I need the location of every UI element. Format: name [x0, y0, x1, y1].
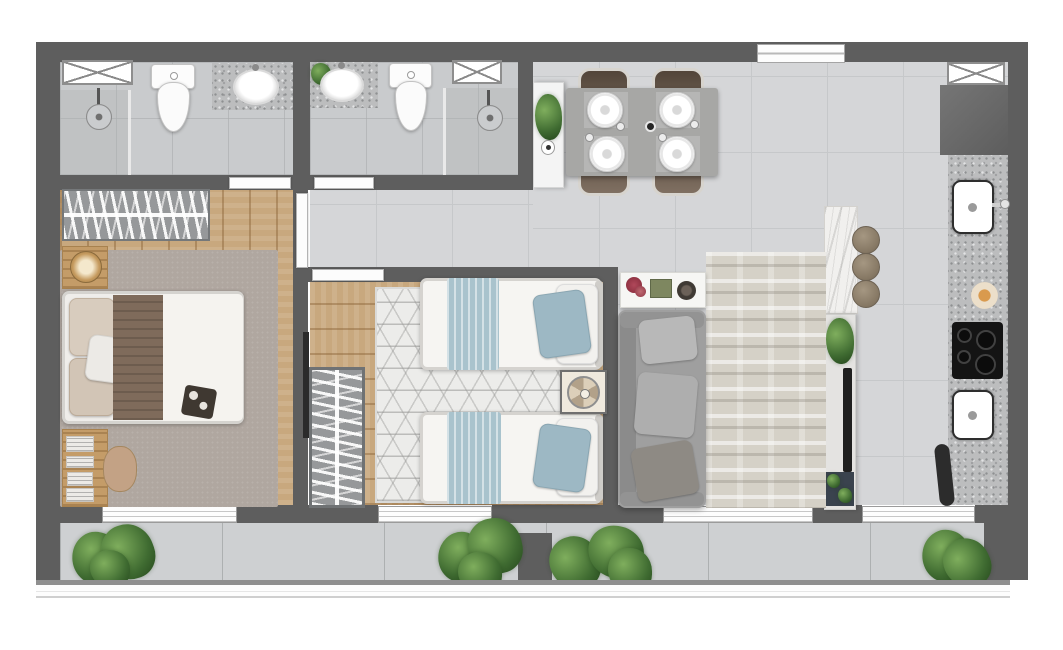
toilet2-button [407, 71, 415, 79]
door-bedroom2 [312, 269, 384, 281]
sofa-cushion-2 [633, 372, 698, 439]
shelf-plant-1-icon [827, 474, 840, 488]
shower2-head-icon [477, 105, 503, 131]
entrance-door [757, 44, 845, 63]
tray-cup-2 [199, 401, 208, 410]
twin-bed-b [420, 412, 602, 504]
toilet1-button [170, 72, 178, 80]
desk-paper-3 [67, 472, 93, 486]
hallway-floor [310, 190, 533, 267]
twin-bed-a-blanket [447, 278, 499, 370]
dark-bowl [677, 281, 696, 300]
slider-bedroom1 [102, 506, 237, 523]
glass-3 [658, 133, 667, 142]
bedroom1-wardrobe [62, 189, 210, 241]
burner-2 [976, 330, 996, 350]
railing-white-band [36, 585, 1010, 598]
bedroom1-lamp-icon [70, 251, 102, 283]
desk-paper-1 [66, 436, 94, 452]
floor-plan [0, 0, 1063, 650]
tv [843, 368, 852, 472]
stool-2 [852, 253, 880, 281]
green-box [650, 279, 672, 298]
shower1-area [60, 90, 131, 175]
bedroom1-desk [62, 429, 108, 507]
hall-plant-icon [535, 94, 562, 140]
wall-bath-bottom [60, 175, 533, 190]
tray-cup-1 [188, 390, 198, 400]
x-window-bathroom1 [62, 60, 133, 85]
shower2-area [443, 88, 518, 175]
glass-1 [616, 122, 625, 131]
slider-living [663, 506, 813, 523]
shower2-glass [443, 88, 446, 175]
slider-kitchen [862, 506, 975, 523]
wall-bath-divider [293, 62, 310, 175]
x-window-kitchen [947, 62, 1005, 85]
twin-bed-a [420, 278, 602, 370]
kitchen-sink-drain [968, 203, 977, 212]
wall-top [36, 42, 1028, 62]
stool-3 [852, 280, 880, 308]
wall-right [1008, 42, 1028, 520]
red-flower-small-icon [635, 286, 646, 297]
wall-bottom-seg2 [237, 505, 307, 523]
door-bedroom1 [296, 193, 308, 268]
burner-1 [957, 328, 972, 343]
desk-paper-2 [66, 456, 94, 468]
vanity2-faucet-icon [338, 62, 345, 69]
glass-4 [690, 120, 699, 129]
living-rug [706, 252, 826, 508]
burner-3 [957, 350, 971, 364]
laundry-sink [952, 390, 994, 440]
glass-2 [585, 133, 594, 142]
laundry-sink-drain [968, 411, 977, 420]
kitchen-sink [952, 180, 994, 234]
desk-paper-4 [66, 488, 94, 502]
vanity1-faucet-icon [252, 64, 259, 71]
decor-dish [971, 282, 998, 309]
wall-bottom-seg1 [60, 505, 102, 523]
rack-navy-shelf [826, 472, 854, 506]
twin-bed-b-blanket [447, 412, 501, 504]
x-window-bathroom2 [452, 60, 502, 84]
bed1-brown-blanket [113, 295, 165, 420]
sofa-cushion-3 [630, 439, 700, 503]
cooktop [952, 322, 1003, 379]
kitchen-tall-cabinet [940, 85, 1008, 155]
bedroom2-wardrobe [309, 367, 365, 508]
shower1-head-icon [86, 104, 112, 130]
desk-chair [103, 446, 137, 492]
door-bathroom2 [314, 177, 374, 189]
wall-bath2-right [518, 62, 533, 175]
twin-bed-b-blue-pillow [532, 423, 592, 494]
vanity1-sink [233, 69, 279, 105]
burner-4 [975, 354, 996, 375]
shower1-glass [128, 90, 131, 175]
wall-left [36, 42, 60, 580]
double-bed [62, 291, 244, 424]
rack-plant-icon [826, 318, 854, 364]
vanity2-sink [320, 68, 364, 102]
hall-vase [541, 140, 555, 155]
decor-console [620, 272, 706, 308]
shelf-plant-2-icon [838, 488, 852, 503]
glass-dark [645, 121, 656, 132]
sofa [618, 310, 706, 508]
kitchen-faucet-icon [1000, 199, 1010, 209]
stool-1 [852, 226, 880, 254]
door-bathroom1 [229, 177, 291, 189]
plate-3 [589, 136, 625, 172]
twin-bed-a-blue-pillow [532, 289, 592, 360]
hall-vase-center [546, 145, 551, 150]
table-fan-icon [567, 376, 600, 409]
wall-bottom-seg6 [975, 505, 1008, 523]
bed1-breakfast-tray [181, 384, 218, 419]
sofa-cushion-1 [638, 315, 698, 365]
